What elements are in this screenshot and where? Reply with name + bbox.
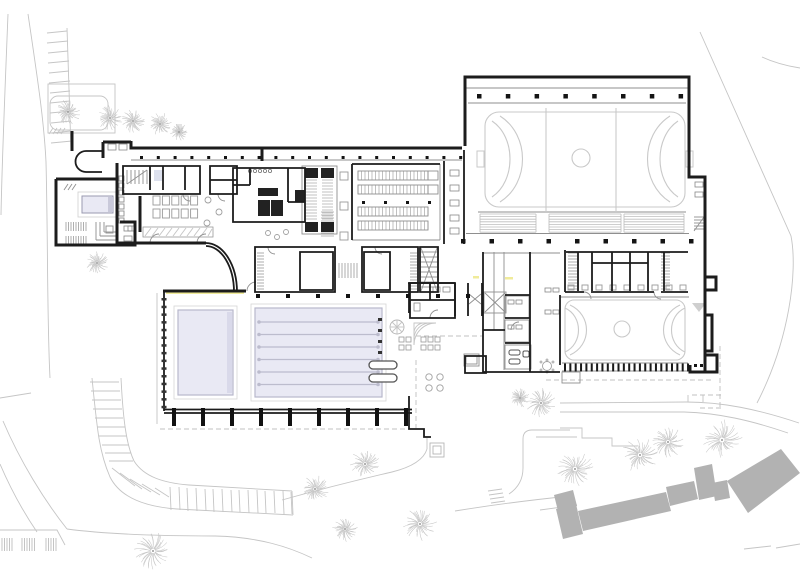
tree [303, 476, 328, 500]
parking-stalls-nw-line [48, 51, 68, 53]
columns-spine [140, 156, 462, 159]
tree [704, 420, 743, 458]
pool-glass-mullions-item [230, 408, 234, 426]
tree-branch [519, 399, 520, 403]
cafeteria-tables-row1-item [172, 196, 179, 205]
columns-spine-item [291, 156, 294, 159]
wc-fixtures-rect [450, 228, 459, 234]
parking-stalls-sw-line [231, 490, 232, 512]
lane-anchor [376, 333, 380, 337]
tree [558, 454, 593, 486]
tree [122, 110, 145, 132]
columns-pool-north-item [316, 294, 320, 298]
gray-buildings [554, 449, 800, 539]
main-walls-path [131, 141, 462, 148]
gray-buildings-shape [556, 504, 583, 539]
site-steps-line [490, 497, 504, 499]
lower-hall-court-arcs [565, 305, 685, 355]
parking-stalls-nw-line [48, 61, 69, 63]
tree [134, 533, 167, 569]
big-hall-court-arcs-path [500, 116, 523, 202]
gray-buildings-shape [578, 492, 671, 531]
columns-hall-south-item [461, 239, 466, 244]
table-chair-dots-circle [552, 369, 554, 371]
columns-hall-south-item [632, 239, 637, 244]
lower-hall-mullions-item [671, 364, 673, 372]
parking-stalls-sw-line [239, 490, 240, 512]
columns-hall-parapet-item [477, 94, 482, 99]
ahu-block-rect [305, 222, 318, 232]
parking-stalls-sw-line [187, 488, 188, 511]
bike-racks [2, 538, 56, 551]
interior-walls-medium-path [364, 252, 390, 290]
parking-stalls-sw-line [179, 487, 180, 510]
counter-hatch-lines-line [159, 228, 165, 236]
pool-west-ticks-item [162, 367, 167, 370]
tree [623, 439, 658, 470]
ahu-block-rect [321, 168, 334, 178]
deck-tables-square-rect [428, 337, 433, 342]
sofas-rect [509, 350, 520, 355]
big-hall-center-circle-circle [572, 149, 590, 167]
wc-fixtures-rect [695, 192, 703, 197]
changing-band-lockers-item [652, 285, 658, 290]
table-chair-dots-circle [552, 361, 554, 363]
columns-spine-item [224, 156, 227, 159]
door-arcs-path [375, 247, 382, 254]
pool-west-ticks-item [162, 337, 167, 340]
columns-spine-item [409, 156, 412, 159]
lower-hall-mullions-item [639, 364, 641, 372]
parking-stalls-nw-line [49, 71, 69, 73]
therapy-pool-rect [108, 197, 113, 212]
roof-dashed [160, 336, 722, 429]
wc-fixtures-rect [443, 287, 450, 292]
changing-band-lockers-item [610, 285, 616, 290]
tree-trunk [574, 468, 576, 470]
site-steps-line [491, 501, 505, 503]
columns-spine-item [442, 156, 445, 159]
interior-walls-medium-path [255, 247, 335, 292]
tree-trunk [159, 123, 161, 125]
lane-anchor [257, 370, 261, 374]
tree-branch [642, 456, 651, 458]
columns-spine-item [140, 156, 143, 159]
big-hall-court [477, 112, 693, 207]
door-arcs-path [183, 194, 190, 201]
terrace-round-tables-circle [437, 374, 443, 380]
lower-hall-mullions-item [564, 364, 566, 372]
changing-band-lockers-item [596, 285, 602, 290]
tree-trunk [314, 488, 316, 490]
dark-furniture-rect [295, 190, 305, 202]
interior-walls-medium-path [76, 151, 103, 172]
lower-hall-mullions-item [682, 364, 684, 372]
lower-hall-center-circle-circle [614, 321, 630, 337]
dark-furniture-rect [271, 200, 283, 216]
parking-stalls-nw-line [51, 141, 72, 143]
big-hall-court-arcs-path [648, 116, 671, 202]
columns-pool-north-item [256, 294, 260, 298]
door-arcs-path [584, 292, 591, 299]
columns-hall-south-item [575, 239, 580, 244]
terrace-round-tables-circle [205, 197, 211, 203]
pool-edge-ticks-item [378, 340, 382, 343]
interior-walls-medium-path [409, 396, 431, 437]
terrace-round-tables-circle [543, 362, 552, 371]
terrace-round-tables-circle [204, 220, 210, 226]
counter-hatch-lines-line [187, 228, 193, 236]
columns-spine-item [207, 156, 210, 159]
tree-branch [364, 466, 365, 474]
lower-hall-mullions-item [628, 364, 630, 372]
tree-branch [136, 552, 151, 558]
tree-trunk [419, 523, 421, 525]
tree-trunk [96, 262, 98, 264]
big-hall-center-circle [572, 149, 590, 167]
site-roads-path [3, 421, 67, 529]
accent-strips-rect [473, 276, 479, 279]
deck-feature-spokes [390, 320, 404, 334]
accent-strips-rect [505, 277, 513, 280]
pool-glass-mullions-item [346, 408, 350, 426]
pool-west-ticks-item [162, 313, 167, 316]
columns-hall-south-item [689, 239, 694, 244]
floor-plan-canvas [0, 0, 800, 575]
sofas-rect [509, 359, 520, 364]
tree-trunk [109, 117, 111, 119]
site-roads-path [744, 544, 800, 549]
columns-hall-south [461, 239, 694, 244]
big-hall-court-rect [477, 151, 484, 167]
lower-hall-mullions-item [618, 364, 620, 372]
deck-tables-square-rect [421, 337, 426, 342]
pool-west-ticks-item [162, 306, 167, 309]
pool-glass-mullions-item [172, 408, 176, 426]
cafeteria-tables-row1 [153, 196, 198, 205]
deck-tables-square-rect [399, 345, 404, 350]
changing-band-lockers-item [680, 285, 686, 290]
small-pool [178, 310, 233, 395]
tree [403, 510, 437, 541]
terrace-round-tables-circle [284, 230, 289, 235]
room-frames-thin-rect [505, 296, 529, 318]
lower-hall-mullions-item [644, 364, 646, 372]
parking-stalls-sw-line [196, 488, 197, 511]
columns-hall-parapet-item [592, 94, 597, 99]
ahu-block-rect [305, 168, 318, 178]
coat-hooks-circle [268, 169, 271, 172]
parking-stalls-sw-line [155, 488, 169, 497]
site-roads-path [28, 14, 50, 378]
coat-hooks [248, 169, 271, 172]
parking-stalls-sw-line [257, 490, 258, 513]
columns-hall-parapet-item [650, 94, 655, 99]
sofas-rect [523, 351, 529, 357]
tree [99, 105, 122, 130]
tree-trunk [344, 528, 346, 530]
counter-hatch-lines-line [194, 228, 200, 236]
interior-walls-medium-path [206, 243, 237, 292]
lower-hall-mullions-item [575, 364, 577, 372]
wc-fixtures-rect [553, 310, 559, 314]
bleachers [480, 214, 684, 232]
lane-anchor [257, 320, 261, 324]
site-roads-path [560, 412, 788, 433]
corridor-lines [352, 164, 688, 371]
wc-fixtures-rect [516, 300, 522, 304]
parking-stalls-nw-line [51, 121, 71, 123]
door-arcs-path [218, 194, 225, 201]
parking-stalls-sw-line [120, 473, 142, 489]
lower-hall-mullions-item [634, 364, 636, 372]
columns-spine-item [174, 156, 177, 159]
changing-band-lockers-item [582, 285, 588, 290]
columns-hall-parapet-item [535, 94, 540, 99]
table-chair-dots-circle [546, 359, 548, 361]
terrace-round-tables-circle [216, 209, 222, 215]
wc-fixtures-rect [695, 182, 703, 187]
pool-west-ticks-item [162, 383, 167, 386]
room-frames-thin-rect [505, 320, 529, 342]
lower-hall-mullions-item [591, 364, 593, 372]
columns-spine-item [157, 156, 160, 159]
columns-spine-item [325, 156, 328, 159]
site-roads-path [762, 57, 800, 68]
accent-strips-rect [154, 170, 162, 181]
big-hall-court-arcs [492, 108, 678, 213]
lower-hall-mullions-item [655, 364, 657, 372]
lower-hall-court [565, 300, 685, 360]
tree [58, 100, 80, 124]
columns-spine-item [392, 156, 395, 159]
lower-hall-mullions-item [623, 364, 625, 372]
pool-west-ticks-item [162, 329, 167, 332]
site-roads-path [700, 32, 793, 403]
cafeteria-tables-row2-item [172, 209, 179, 218]
columns-hall-south-item [547, 239, 552, 244]
fitness-row-frames [358, 171, 438, 230]
columns-spine-item [426, 156, 429, 159]
tree-branch [420, 510, 421, 522]
tree-trunk [540, 402, 542, 404]
pool-glass-mullions-item [375, 408, 379, 426]
columns-hall-parapet [477, 94, 683, 99]
counter-hatch-lines-line [173, 228, 179, 236]
foyer-lockers-column-item [119, 204, 124, 209]
pool-west-ticks-item [162, 321, 167, 324]
lower-hall-court-arcs-path [672, 308, 686, 352]
site-steps-line [489, 493, 503, 495]
lower-hall-mullions-item [666, 364, 668, 372]
door-arcs-path [268, 247, 275, 254]
interior-walls-medium-path [206, 246, 234, 292]
wc-fixtures-rect [450, 200, 459, 206]
pool-west-ticks-item [162, 406, 167, 409]
tree [151, 113, 172, 134]
room-frames-thin-rect [433, 446, 441, 454]
tree-branch [421, 526, 423, 533]
sofas [509, 350, 529, 364]
site-roads-path [560, 402, 799, 423]
lane-anchor [257, 333, 261, 337]
lane-anchor [257, 358, 261, 362]
columns-hall-parapet-item [506, 94, 511, 99]
deck-tables-square-rect [435, 337, 440, 342]
columns-pool-north [256, 294, 470, 298]
parking-stalls-sw-line [274, 491, 275, 513]
pool-glass-mullions-item [259, 408, 263, 426]
pool-west-ticks-item [162, 298, 167, 301]
room-frames-thin-rect [562, 372, 580, 383]
parking-stalls-nw-line [49, 81, 70, 83]
terrace-round-tables-circle [426, 385, 432, 391]
columns-spine-item [190, 156, 193, 159]
parking-stalls-nw-line [47, 41, 68, 43]
table-chair-dots-circle [540, 369, 542, 371]
cafeteria-tables-row2-item [191, 209, 198, 218]
lower-hall-court-arcs-path [565, 308, 579, 352]
tree-branch [140, 550, 151, 551]
room-frames-thin-rect [340, 232, 348, 240]
columns-hall-parapet-item [679, 94, 684, 99]
wc-fixtures-rect [414, 303, 420, 311]
gray-buildings-shape [666, 481, 698, 506]
columns-pool-north-item [436, 294, 440, 298]
tree [526, 388, 555, 417]
fitness-row-frames-rect [428, 171, 438, 180]
interior-walls-medium-path [300, 252, 333, 290]
lower-hall-mullions-item [607, 364, 609, 372]
parking-stalls-nw-line [47, 31, 67, 33]
pool-edge-ticks-item [378, 329, 382, 332]
tree [332, 519, 357, 542]
tree [653, 428, 684, 458]
columns-pool-north-item [406, 294, 410, 298]
therapy-pool [82, 196, 113, 213]
deck-tables-square-rect [406, 337, 411, 342]
fitness-row-frames-rect [428, 185, 438, 194]
tree-branch [143, 538, 152, 549]
columns-east-pair [694, 364, 703, 367]
wc-fixtures-rect [553, 288, 559, 292]
tree-branch [152, 553, 153, 569]
gray-buildings-shape [712, 480, 730, 501]
columns-fitness-item [406, 201, 409, 204]
columns-spine-item [241, 156, 244, 159]
pool-west-ticks-item [162, 360, 167, 363]
pool-west-ticks-item [162, 390, 167, 393]
pool-glass-mullions-item [201, 408, 205, 426]
wc-fixtures-rect [508, 300, 514, 304]
columns-spine-item [274, 156, 277, 159]
site-roads-path [1, 14, 8, 215]
wc-fixtures-rect [450, 170, 459, 176]
coat-hooks-circle [253, 169, 256, 172]
tree-trunk [67, 111, 69, 113]
columns-hall-south-item [490, 239, 495, 244]
tree [511, 389, 529, 407]
site-roads-path [282, 449, 427, 500]
tree-branch [142, 538, 151, 550]
interior-walls-medium-path [483, 252, 560, 372]
main-walls-path [705, 277, 716, 290]
columns-pool-north-item [376, 294, 380, 298]
wc-fixtures-rect [450, 215, 459, 221]
big-hall-court-arcs-path [492, 121, 510, 197]
stair-hatches-line [72, 184, 76, 190]
cafeteria-tables-row2-item [181, 209, 188, 218]
terrace-round-tables-circle [275, 235, 280, 240]
cafeteria-tables-row1-item [153, 196, 160, 205]
gray-buildings-shape [727, 449, 800, 513]
columns-spine-item [459, 156, 462, 159]
terrace-round-tables-circle [426, 374, 432, 380]
lower-hall-mullions-item [580, 364, 582, 372]
lane-anchor [376, 345, 380, 349]
lane-anchor [257, 383, 261, 387]
deck-tables-square-rect [428, 345, 433, 350]
tree [350, 451, 379, 476]
room-frames-thin-rect [466, 356, 477, 364]
columns-pool-north-item [346, 294, 350, 298]
dark-furniture-rect [258, 200, 270, 216]
floor-plan-sheet [0, 0, 800, 575]
gray-buildings-shape [694, 464, 717, 500]
pool-edge-ticks-item [378, 318, 382, 321]
tree-trunk [178, 131, 180, 133]
columns-spine-item [375, 156, 378, 159]
columns-fitness-item [428, 201, 431, 204]
tree-trunk [364, 463, 366, 465]
columns-spine-item [258, 156, 261, 159]
columns-spine-item [342, 156, 345, 159]
wc-fixtures-rect [108, 144, 116, 150]
parking-stalls-sw-line [248, 490, 249, 513]
deck-tables-square-rect [435, 345, 440, 350]
changing-band-lockers-item [638, 285, 644, 290]
small-pool-rect [227, 312, 232, 393]
columns-hall-south-item [604, 239, 609, 244]
tree-branch [715, 428, 721, 438]
terrace-round-tables-circle [437, 385, 443, 391]
parking-stalls-sw-line [112, 468, 135, 486]
tree-branch [642, 456, 655, 464]
parking-stalls-sw-line [265, 491, 266, 513]
pool-west-ticks-item [162, 344, 167, 347]
lower-hall-mullions-item [650, 364, 652, 372]
main-walls-path [706, 355, 717, 372]
counter-hatch-lines-line [180, 228, 186, 236]
tree-trunk [519, 397, 521, 399]
pool-west-ticks-item [162, 352, 167, 355]
room-frames-thin-rect [430, 443, 444, 457]
pool-edge-ticks-item [378, 351, 382, 354]
ahu-ladders [306, 180, 333, 219]
columns-spine-item [358, 156, 361, 159]
pool-glass-mullions-item [317, 408, 321, 426]
parking-stalls-sw [90, 382, 292, 514]
stair-hatches-line [68, 184, 72, 190]
lane-anchor [376, 383, 380, 387]
tree [170, 124, 187, 140]
wc-fixtures-rect [450, 185, 459, 191]
tree-branch [577, 471, 588, 480]
foyer-lockers-column-item [119, 211, 124, 216]
interior-walls-medium-path [233, 168, 250, 185]
lower-hall-mullions-item [569, 364, 571, 372]
tree-trunk [667, 441, 669, 443]
